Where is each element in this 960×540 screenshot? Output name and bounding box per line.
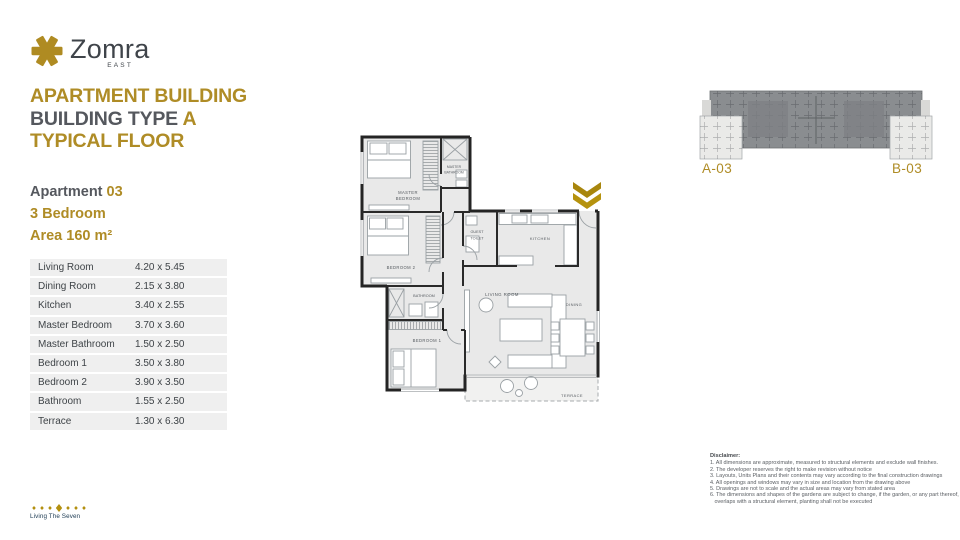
disclaimer: Disclaimer: 1. All dimensions are approx…	[710, 453, 960, 505]
apartment-area: Area 160 m²	[30, 225, 123, 247]
page-title: APARTMENT BUILDING BUILDING TYPE A TYPIC…	[30, 85, 247, 153]
title-line-2: BUILDING TYPE A	[30, 108, 247, 131]
brand-logo: Zomra EAST	[30, 33, 190, 77]
asterisk-logo-icon	[30, 34, 64, 68]
label-master-bedroom: MASTER	[398, 190, 418, 195]
svg-text:BATHROOM: BATHROOM	[444, 171, 464, 175]
title-line-3: TYPICAL FLOOR	[30, 130, 247, 153]
label-kitchen: KITCHEN	[530, 236, 550, 241]
disclaimer-line: 1. All dimensions are approximate, measu…	[710, 460, 960, 466]
disclaimer-line: 3. Layouts, Units Plans and their conten…	[710, 473, 960, 479]
table-row: Bedroom 13.50 x 3.80	[30, 355, 227, 372]
label-bathroom: BATHROOM	[413, 294, 435, 298]
footer-tagline: Living The Seven	[30, 513, 80, 520]
label-bedroom-2: BEDROOM 2	[387, 265, 416, 270]
key-plan	[698, 88, 934, 162]
highlighted-unit-b	[890, 116, 932, 159]
svg-text:TOILET: TOILET	[470, 237, 484, 241]
label-living-room: LIVING ROOM	[485, 292, 519, 297]
table-row: Dining Room2.15 x 3.80	[30, 278, 227, 295]
brochure-page: Zomra EAST APARTMENT BUILDING BUILDING T…	[0, 0, 960, 540]
disclaimer-title: Disclaimer:	[710, 453, 960, 459]
label-dining: DINING	[566, 302, 582, 307]
table-row: Terrace1.30 x 6.30	[30, 413, 227, 430]
dimensions-table: Living Room4.20 x 5.45 Dining Room2.15 x…	[30, 259, 227, 432]
key-plan-unit-a-label: A-03	[702, 161, 732, 176]
label-master-bathroom: MASTER	[447, 165, 462, 169]
disclaimer-line: 6. The dimensions and shapes of the gard…	[710, 492, 960, 505]
highlighted-unit-a	[700, 116, 742, 159]
table-row: Master Bedroom3.70 x 3.60	[30, 317, 227, 334]
label-bedroom-1: BEDROOM 1	[413, 338, 442, 343]
label-terrace: TERRACE	[561, 393, 583, 398]
key-plan-unit-b-label: B-03	[892, 161, 922, 176]
svg-text:BEDROOM: BEDROOM	[396, 196, 421, 201]
label-guest-toilet: GUEST	[470, 230, 484, 234]
table-row: Living Room4.20 x 5.45	[30, 259, 227, 276]
table-row: Bedroom 23.90 x 3.50	[30, 374, 227, 391]
table-row: Bathroom1.55 x 2.50	[30, 393, 227, 410]
title-line-1: APARTMENT BUILDING	[30, 85, 247, 108]
floor-plan: MASTER BEDROOM MASTER BATHROOM BEDROOM 2…	[355, 128, 605, 408]
apartment-type: 3 Bedroom	[30, 203, 123, 225]
brand-sub: EAST	[70, 62, 133, 69]
table-row: Master Bathroom1.50 x 2.50	[30, 336, 227, 353]
table-row: Kitchen3.40 x 2.55	[30, 297, 227, 314]
apartment-number-line: Apartment 03	[30, 181, 123, 203]
brand-name: Zomra	[70, 34, 150, 65]
apartment-info: Apartment 03 3 Bedroom Area 160 m²	[30, 181, 123, 247]
footer-stars-icon	[30, 503, 90, 513]
